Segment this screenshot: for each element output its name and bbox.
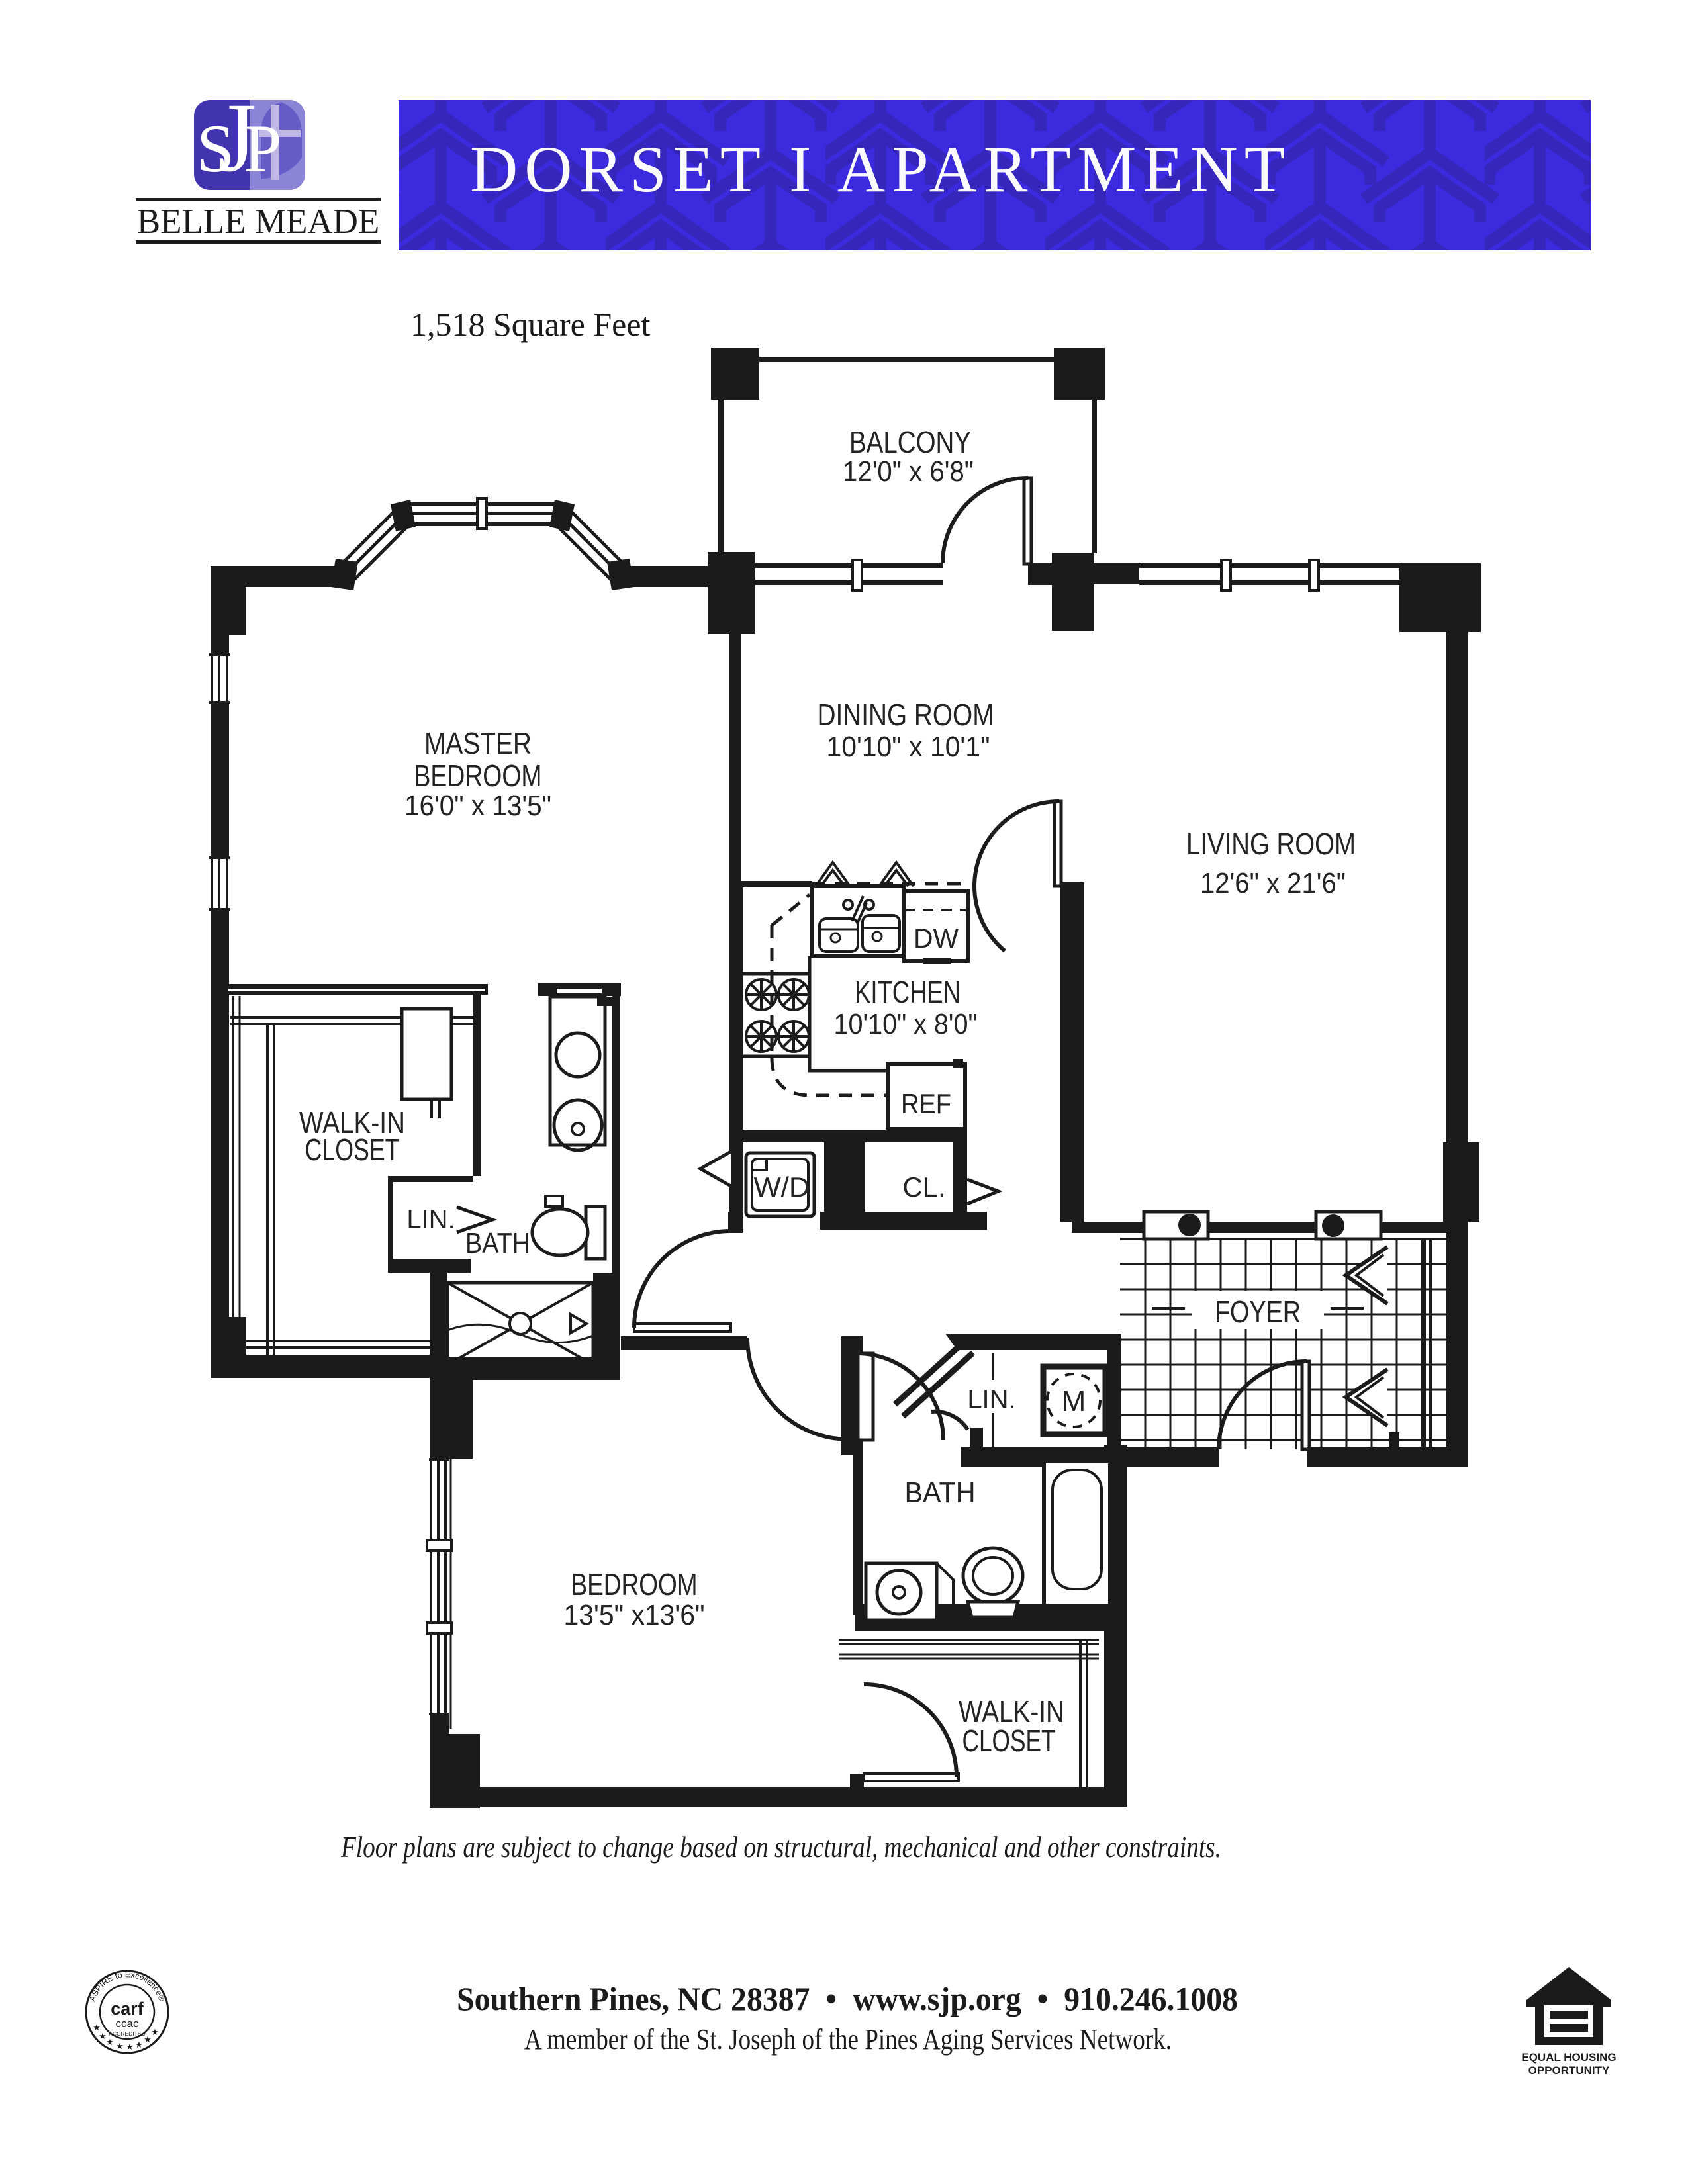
svg-text:ACCREDITED: ACCREDITED (109, 2030, 145, 2037)
svg-text:OPPORTUNITY: OPPORTUNITY (1528, 2064, 1610, 2077)
svg-text:★: ★ (144, 2034, 152, 2044)
svg-text:1,518 Square Feet: 1,518 Square Feet (410, 306, 651, 343)
svg-text:EQUAL HOUSING: EQUAL HOUSING (1521, 2051, 1616, 2064)
svg-text:★: ★ (106, 2037, 114, 2047)
svg-text:BALCONY: BALCONY (849, 425, 971, 459)
svg-text:LIN.: LIN. (406, 1205, 455, 1234)
svg-text:CLOSET: CLOSET (962, 1723, 1056, 1758)
svg-text:DW: DW (914, 923, 959, 954)
svg-text:★: ★ (126, 2042, 134, 2052)
svg-text:BATH: BATH (465, 1227, 530, 1259)
svg-text:BATH: BATH (905, 1477, 976, 1509)
svg-text:12'0" x 6'8": 12'0" x 6'8" (843, 455, 974, 488)
svg-text:DORSET I APARTMENT: DORSET I APARTMENT (470, 132, 1291, 206)
svg-text:CL.: CL. (902, 1171, 945, 1203)
svg-text:REF: REF (901, 1088, 951, 1119)
svg-text:16'0" x 13'5": 16'0" x 13'5" (404, 790, 551, 822)
svg-text:ccac: ccac (116, 2017, 139, 2030)
svg-text:Floor plans are subject to cha: Floor plans are subject to change based … (340, 1830, 1221, 1864)
svg-text:MASTER: MASTER (424, 726, 532, 760)
svg-text:A member of the St. Joseph of: A member of the St. Joseph of the Pines … (524, 2023, 1172, 2056)
svg-text:★: ★ (93, 2023, 101, 2032)
svg-text:W/D: W/D (754, 1171, 810, 1203)
svg-text:Southern Pines, NC 28387 • w: Southern Pines, NC 28387 • www.sjp.org •… (457, 1980, 1238, 2017)
svg-text:M: M (1062, 1385, 1086, 1418)
svg-text:carf: carf (111, 1999, 144, 2019)
svg-text:BEDROOM: BEDROOM (571, 1567, 698, 1602)
svg-text:★: ★ (116, 2041, 124, 2051)
svg-text:★: ★ (99, 2031, 107, 2041)
svg-text:10'10" x 8'0": 10'10" x 8'0" (834, 1008, 978, 1040)
svg-text:P: P (244, 111, 281, 187)
svg-text:LIVING ROOM: LIVING ROOM (1186, 827, 1356, 861)
svg-text:DINING ROOM: DINING ROOM (818, 698, 994, 732)
svg-text:BELLE MEADE: BELLE MEADE (137, 203, 380, 241)
svg-text:LIN.: LIN. (967, 1385, 1015, 1414)
svg-text:BEDROOM: BEDROOM (414, 758, 542, 793)
svg-text:13'5" x13'6": 13'5" x13'6" (564, 1599, 705, 1631)
svg-text:10'10" x 10'1": 10'10" x 10'1" (827, 731, 990, 763)
svg-text:★: ★ (151, 2027, 159, 2037)
svg-text:12'6" x 21'6": 12'6" x 21'6" (1200, 867, 1346, 899)
svg-text:★: ★ (135, 2040, 143, 2050)
svg-text:CLOSET: CLOSET (305, 1132, 400, 1167)
svg-text:FOYER: FOYER (1215, 1295, 1301, 1329)
svg-text:KITCHEN: KITCHEN (855, 975, 961, 1009)
